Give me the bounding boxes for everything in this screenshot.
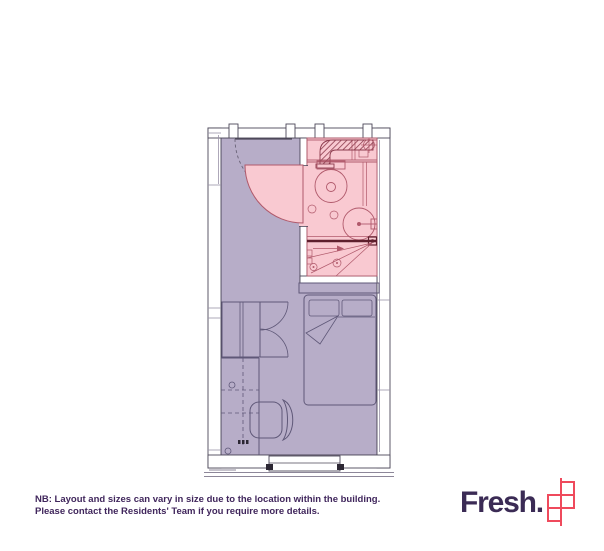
fresh-logo-icon xyxy=(544,476,592,528)
floor-plan xyxy=(0,0,604,551)
fresh-wordmark: Fresh. xyxy=(460,486,543,520)
disclaimer-note: NB: Layout and sizes can vary in size du… xyxy=(35,494,380,518)
disclaimer-line-1: NB: Layout and sizes can vary in size du… xyxy=(35,494,380,506)
studio-floorplan-page: NB: Layout and sizes can vary in size du… xyxy=(0,0,604,551)
disclaimer-line-2: Please contact the Residents' Team if yo… xyxy=(35,506,380,518)
switch-symbol xyxy=(238,440,249,444)
